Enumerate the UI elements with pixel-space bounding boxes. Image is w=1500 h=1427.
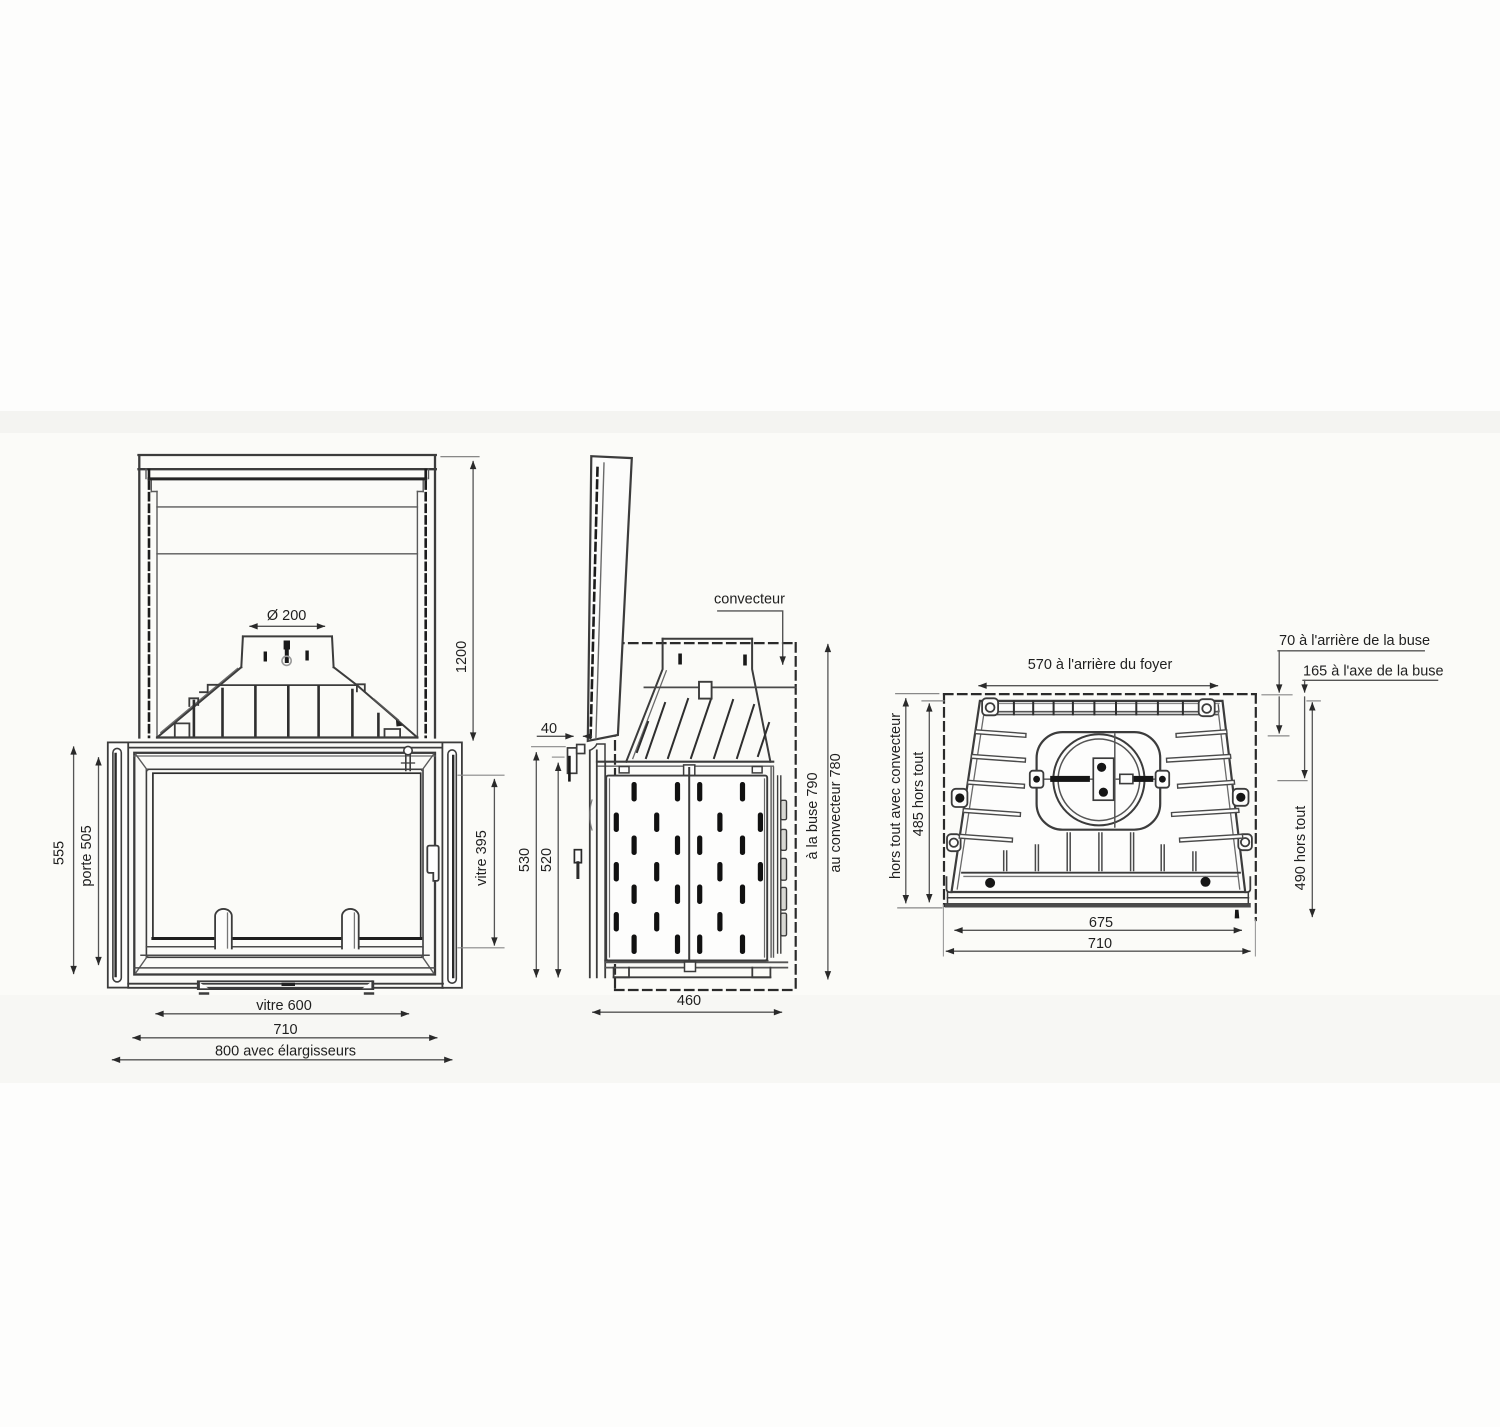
svg-text:convecteur: convecteur <box>714 592 785 608</box>
svg-text:530: 530 <box>517 848 533 872</box>
svg-text:porte 505: porte 505 <box>79 825 95 886</box>
svg-text:710: 710 <box>1088 936 1112 952</box>
svg-text:520: 520 <box>539 848 555 872</box>
svg-text:vitre 600: vitre 600 <box>256 998 312 1014</box>
svg-text:800 avec élargisseurs: 800 avec élargisseurs <box>215 1044 356 1060</box>
svg-text:710: 710 <box>273 1022 297 1038</box>
svg-text:570 à l'arrière du foyer: 570 à l'arrière du foyer <box>1028 657 1173 673</box>
svg-text:675: 675 <box>1089 915 1113 931</box>
svg-text:490 hors tout: 490 hors tout <box>1293 806 1309 891</box>
svg-text:460: 460 <box>677 993 701 1009</box>
svg-text:vitre 395: vitre 395 <box>474 830 490 886</box>
svg-text:Ø 200: Ø 200 <box>267 608 307 624</box>
svg-text:au convecteur 780: au convecteur 780 <box>828 753 844 872</box>
svg-text:hors tout avec convecteur: hors tout avec convecteur <box>888 713 904 879</box>
svg-text:40: 40 <box>541 721 557 737</box>
svg-text:à la buse 790: à la buse 790 <box>805 772 821 859</box>
svg-text:485 hors tout: 485 hors tout <box>911 752 927 837</box>
svg-text:1200: 1200 <box>454 641 470 673</box>
svg-text:70 à l'arrière de la buse: 70 à l'arrière de la buse <box>1279 633 1430 649</box>
svg-text:555: 555 <box>52 841 68 865</box>
svg-text:165 à l'axe de la buse: 165 à l'axe de la buse <box>1303 664 1444 680</box>
